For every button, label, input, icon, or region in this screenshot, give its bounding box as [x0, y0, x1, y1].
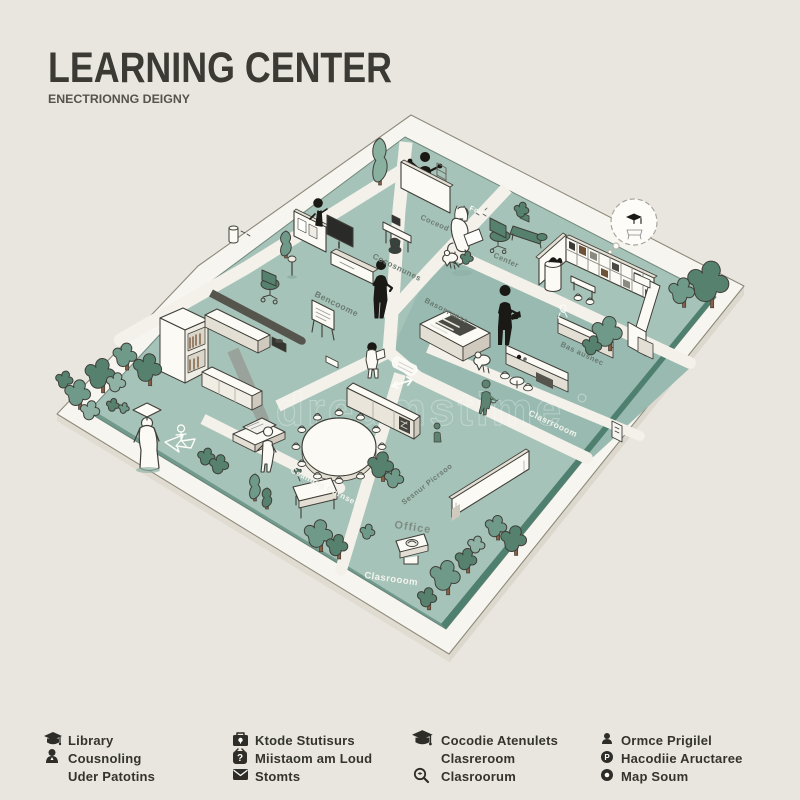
svg-text:P: P: [604, 753, 610, 762]
svg-text:ENECTRIONNG DEIGNY: ENECTRIONNG DEIGNY: [48, 94, 190, 106]
svg-text:Miistaom am Loud: Miistaom am Loud: [255, 751, 372, 766]
svg-text:Map Soum: Map Soum: [621, 769, 688, 784]
svg-text:Ormce Prigilel: Ormce Prigilel: [621, 733, 712, 748]
svg-text:Clasreroom: Clasreroom: [441, 751, 515, 766]
svg-text:Hacodiie Aructaree: Hacodiie Aructaree: [621, 751, 743, 766]
svg-text:LEARNING CENTER: LEARNING CENTER: [48, 45, 392, 92]
svg-text:?: ?: [237, 753, 243, 764]
svg-text:Cocodie Atenulets: Cocodie Atenulets: [441, 733, 558, 748]
svg-text:Cousnoling: Cousnoling: [68, 751, 142, 766]
svg-text:Stomts: Stomts: [255, 769, 300, 784]
svg-text:Clasroorum: Clasroorum: [441, 769, 516, 784]
svg-text:Library: Library: [68, 733, 114, 748]
svg-text:Uder Patotins: Uder Patotins: [68, 769, 155, 784]
svg-text:Ktode Stutisurs: Ktode Stutisurs: [255, 733, 355, 748]
